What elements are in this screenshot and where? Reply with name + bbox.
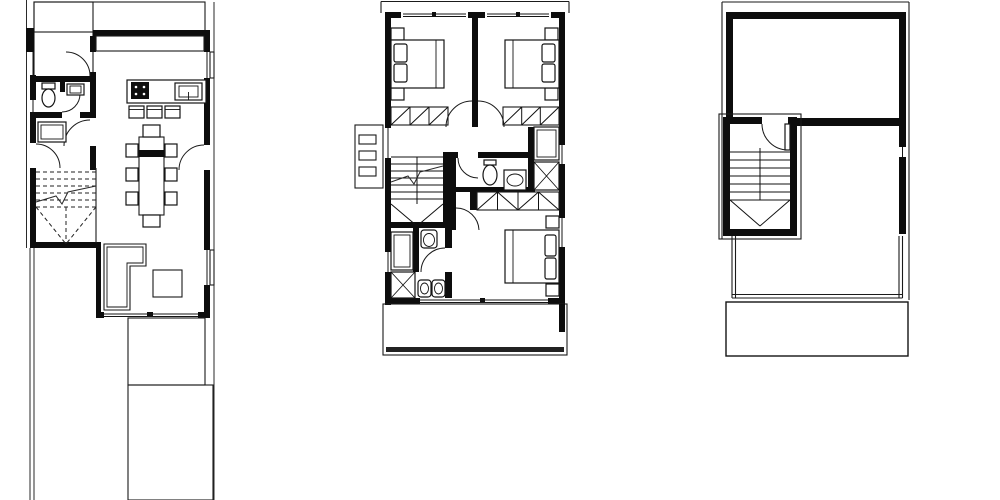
first-floor-plan: [355, 2, 569, 356]
bathroom-toilet: [483, 160, 497, 185]
roof-plan: [719, 2, 909, 356]
parapet-outline: [381, 2, 569, 14]
ac-louvre-unit: [355, 125, 383, 188]
dining-chairs: [126, 125, 177, 227]
kitchen-island: [127, 80, 206, 103]
break-line: [36, 186, 96, 204]
wardrobe-master: [477, 192, 559, 210]
bulkhead-door: [762, 124, 790, 150]
en-suite-toilet: [421, 230, 437, 248]
double-sinks: [418, 280, 445, 297]
linen-closet: [391, 232, 413, 270]
cooktop: [131, 82, 149, 99]
floor-plans-drawing: [0, 0, 1000, 500]
property-boundary-lines: [27, 0, 215, 500]
balcony-rail: [383, 304, 567, 355]
storage-closet: [38, 122, 66, 142]
built-in-closet: [534, 127, 559, 160]
en-suite-shower: [391, 272, 415, 298]
bedroom-2-bed: [505, 28, 559, 100]
wardrobe-bedroom-2: [503, 107, 559, 125]
floor-plan-sheet: [0, 0, 1000, 500]
kitchen-counter: [96, 36, 204, 51]
l-shaped-sofa: [104, 244, 146, 310]
shower-box: [534, 162, 559, 190]
roof-terrace-railing: [732, 236, 903, 298]
roof-edge-outline: [722, 2, 909, 300]
wc-sink: [60, 82, 84, 95]
bar-stools: [129, 106, 180, 118]
timber-deck: [128, 318, 213, 500]
ground-floor-plan: [26, 0, 214, 500]
stair-bulkhead: [719, 114, 801, 239]
master-bed: [505, 216, 559, 296]
wc-toilet: [42, 83, 55, 107]
kitchen-sink: [175, 83, 202, 100]
wardrobe-bedroom-1: [391, 107, 448, 125]
staircase: [391, 157, 443, 226]
bedroom-1-bed: [391, 28, 444, 100]
stair-flight: [730, 148, 790, 226]
rug: [153, 270, 182, 297]
dining-table: [139, 137, 164, 215]
dashed-staircase: [36, 172, 96, 244]
lower-canopy-slab: [726, 302, 908, 356]
bathroom-sink: [504, 170, 526, 190]
tiled-patio: [34, 2, 205, 80]
